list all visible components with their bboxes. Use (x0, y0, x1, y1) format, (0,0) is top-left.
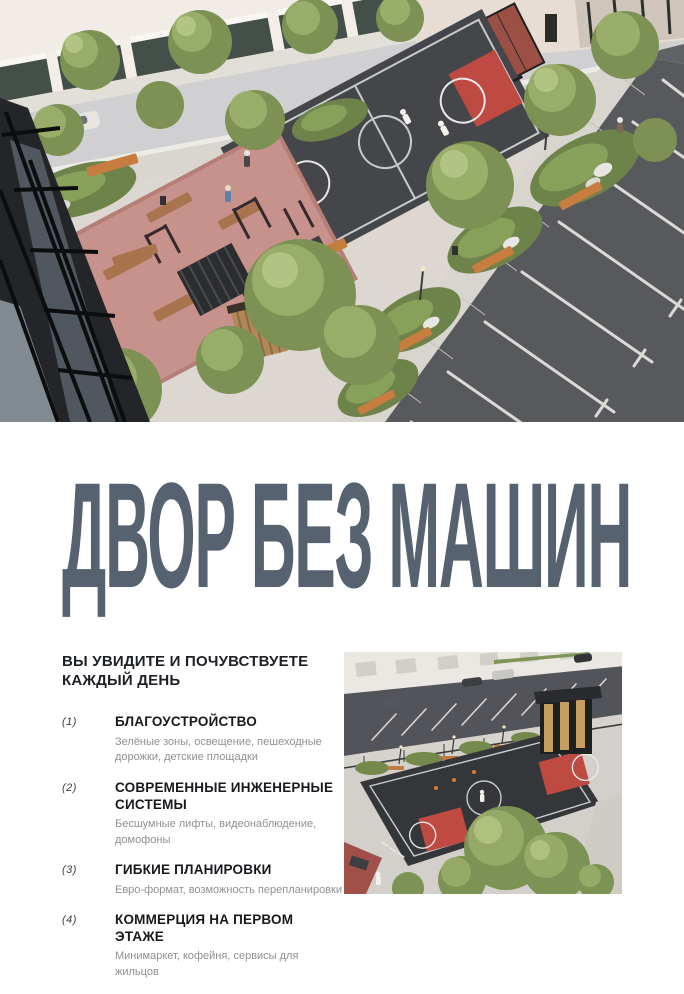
feature-desc: Бесшумные лифты, видеонаблюдение, домофо… (115, 817, 344, 848)
feature-number: (1) (62, 714, 115, 766)
hero-render: BASKETBALL (0, 0, 684, 422)
feature-desc: Минимаркет, кофейня, сервисы для жильцов (115, 949, 344, 980)
feature-title: БЛАГОУСТРОЙСТВО (115, 714, 344, 730)
page-title: ДВОР БЕЗ МАШИН (62, 474, 294, 597)
feature-number: (3) (62, 862, 115, 898)
features-heading-line2: КАЖДЫЙ ДЕНЬ (62, 672, 180, 689)
features-heading: ВЫ УВИДИТЕ И ПОЧУВСТВУЕТЕ КАЖДЫЙ ДЕНЬ (62, 652, 344, 690)
feature-number: (4) (62, 912, 115, 980)
feature-item: (4) КОММЕРЦИЯ НА ПЕРВОМ ЭТАЖЕ Минимаркет… (62, 912, 344, 980)
feature-item: (2) СОВРЕМЕННЫЕ ИНЖЕНЕРНЫЕ СИСТЕМЫ Бесшу… (62, 780, 344, 848)
feature-title: КОММЕРЦИЯ НА ПЕРВОМ ЭТАЖЕ (115, 912, 344, 945)
feature-title: СОВРЕМЕННЫЕ ИНЖЕНЕРНЫЕ СИСТЕМЫ (115, 780, 344, 813)
feature-number: (2) (62, 780, 115, 848)
hero-image: BASKETBALL (0, 0, 684, 422)
features-heading-line1: ВЫ УВИДИТЕ И ПОЧУВСТВУЕТЕ (62, 653, 308, 670)
feature-desc: Зелёные зоны, освещение, пешеходные доро… (115, 735, 344, 766)
features-section: ВЫ УВИДИТЕ И ПОЧУВСТВУЕТЕ КАЖДЫЙ ДЕНЬ (1… (62, 652, 622, 994)
feature-title: ГИБКИЕ ПЛАНИРОВКИ (115, 862, 344, 878)
feature-item: (3) ГИБКИЕ ПЛАНИРОВКИ Евро-формат, возмо… (62, 862, 344, 898)
secondary-image (344, 652, 622, 894)
feature-desc: Евро-формат, возможность перепланировки (115, 883, 344, 899)
feature-item: (1) БЛАГОУСТРОЙСТВО Зелёные зоны, освеще… (62, 714, 344, 766)
features-list: ВЫ УВИДИТЕ И ПОЧУВСТВУЕТЕ КАЖДЫЙ ДЕНЬ (1… (62, 652, 344, 994)
courtyard-render (344, 652, 622, 894)
headline-section: ДВОР БЕЗ МАШИН (62, 474, 622, 602)
pavilion (534, 686, 602, 754)
